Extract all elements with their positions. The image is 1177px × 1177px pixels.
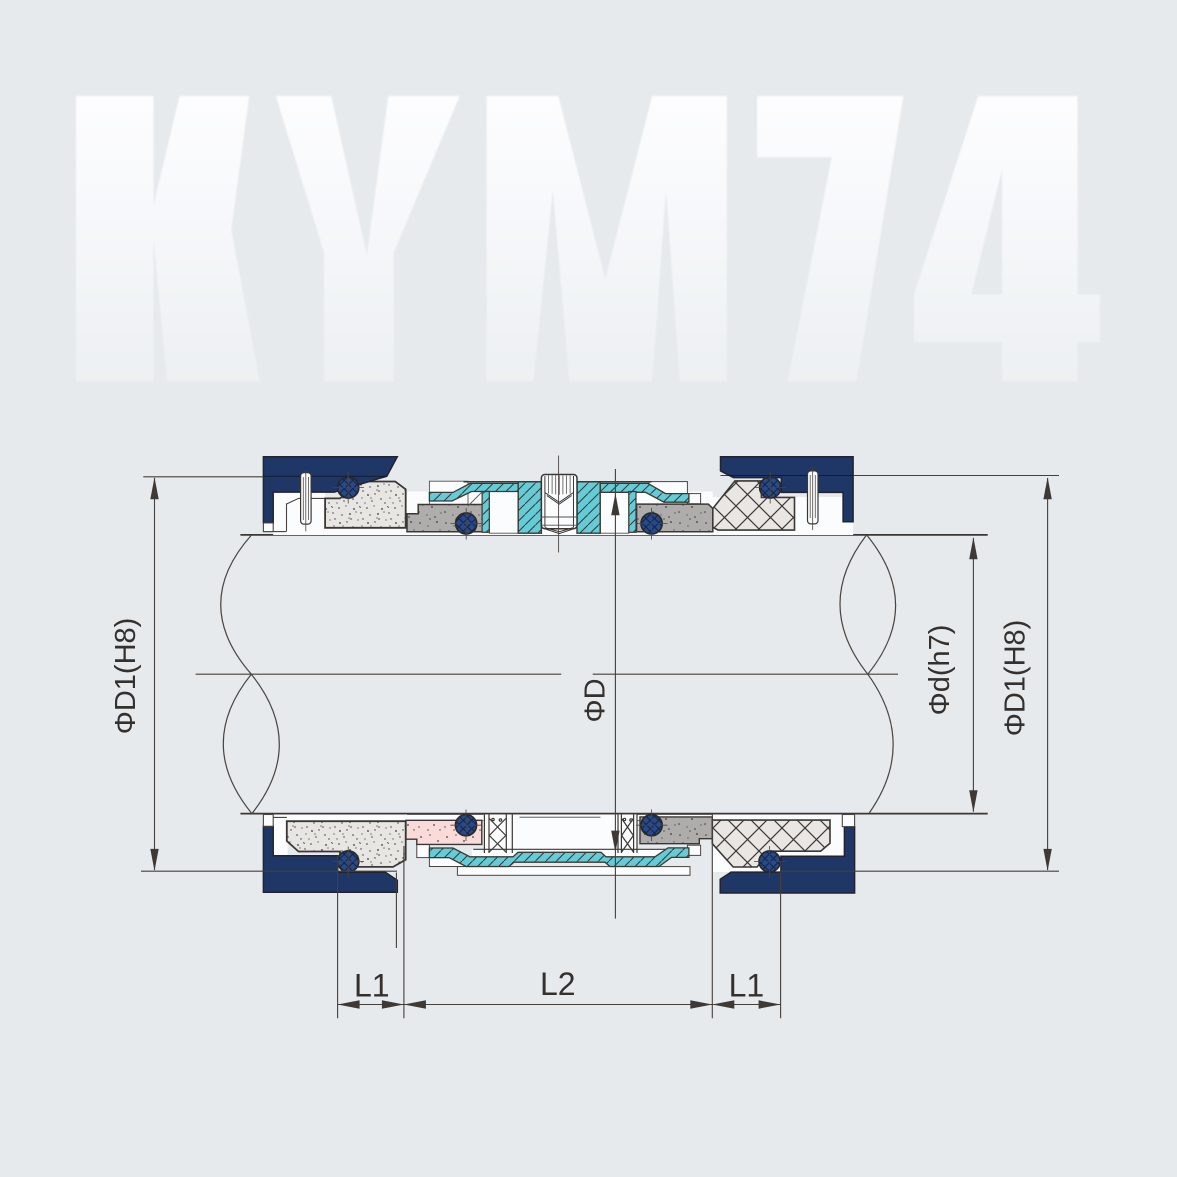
svg-text:L1: L1 [354,968,390,1004]
svg-text:Φd(h7): Φd(h7) [924,625,956,716]
svg-text:ΦD1(H8): ΦD1(H8) [110,618,142,735]
svg-text:L1: L1 [729,968,765,1004]
svg-text:ΦD1(H8): ΦD1(H8) [1000,620,1032,737]
svg-text:L2: L2 [540,966,576,1002]
svg-text:ΦD: ΦD [579,678,611,722]
